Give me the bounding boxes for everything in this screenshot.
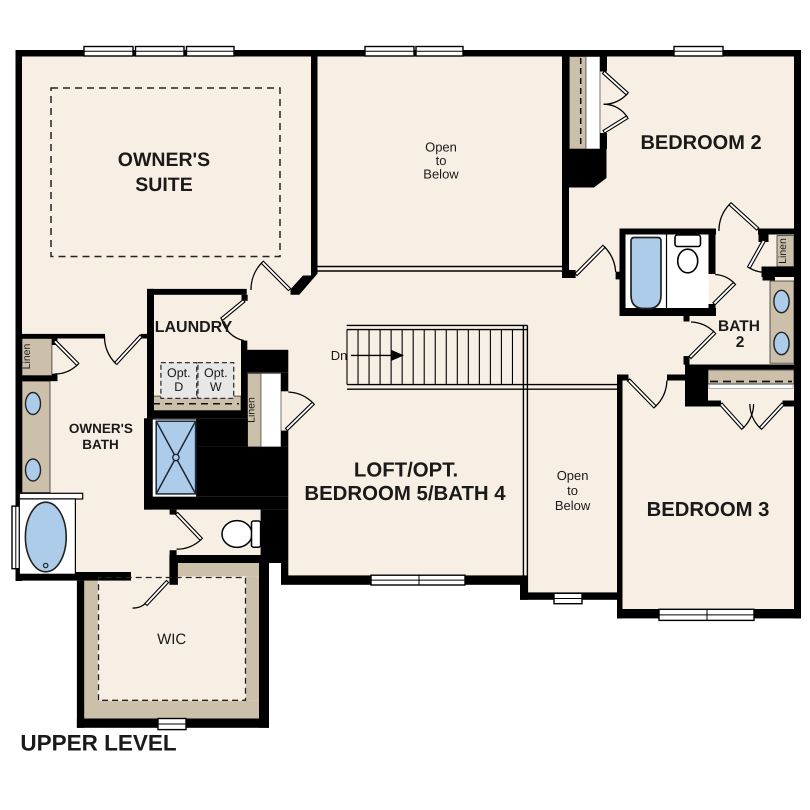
svg-text:Linen: Linen bbox=[777, 238, 789, 264]
svg-text:BEDROOM 2: BEDROOM 2 bbox=[640, 132, 761, 154]
svg-text:OWNER'S: OWNER'S bbox=[118, 149, 210, 171]
svg-text:UPPER LEVEL: UPPER LEVEL bbox=[20, 731, 177, 756]
svg-text:BEDROOM 3: BEDROOM 3 bbox=[647, 499, 770, 521]
svg-text:Linen: Linen bbox=[21, 344, 33, 370]
svg-text:2: 2 bbox=[736, 334, 745, 351]
svg-text:Linen: Linen bbox=[246, 397, 258, 423]
svg-text:BATH: BATH bbox=[82, 437, 119, 452]
svg-text:BATH: BATH bbox=[718, 318, 760, 335]
svg-text:WIC: WIC bbox=[157, 631, 186, 648]
svg-text:Open: Open bbox=[557, 468, 589, 483]
svg-text:SUITE: SUITE bbox=[135, 174, 192, 196]
svg-text:D: D bbox=[174, 380, 183, 394]
svg-text:Dn: Dn bbox=[331, 348, 348, 363]
svg-text:BEDROOM 5/BATH 4: BEDROOM 5/BATH 4 bbox=[304, 483, 506, 505]
svg-text:Below: Below bbox=[555, 498, 591, 513]
svg-text:Opt.: Opt. bbox=[167, 366, 191, 380]
svg-text:LAUNDRY: LAUNDRY bbox=[155, 319, 233, 336]
svg-text:Below: Below bbox=[423, 167, 459, 182]
svg-text:W: W bbox=[210, 380, 222, 394]
svg-text:LOFT/OPT.: LOFT/OPT. bbox=[354, 459, 458, 481]
svg-text:to: to bbox=[567, 483, 578, 498]
svg-text:OWNER'S: OWNER'S bbox=[69, 421, 133, 436]
svg-text:Opt.: Opt. bbox=[204, 366, 228, 380]
